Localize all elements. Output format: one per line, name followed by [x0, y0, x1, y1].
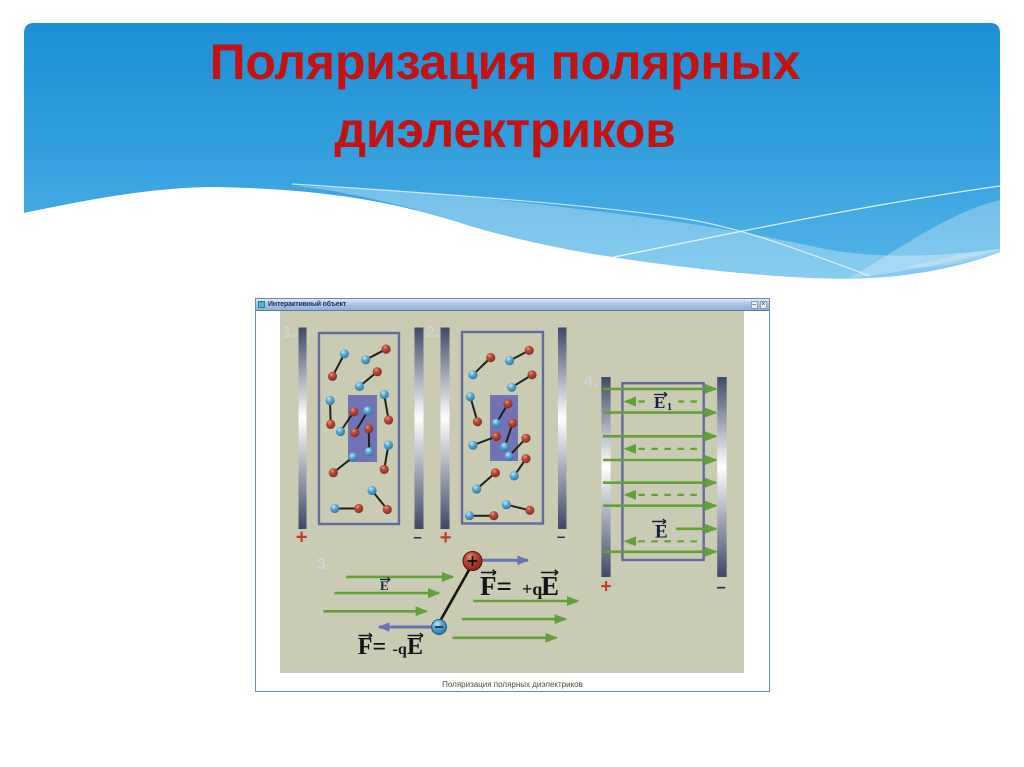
- svg-text:F=: F=: [358, 634, 386, 660]
- svg-text:E: E: [380, 578, 389, 593]
- svg-text:2.: 2.: [426, 324, 439, 341]
- svg-text:+: +: [440, 527, 452, 549]
- svg-text:F=: F=: [480, 571, 512, 601]
- svg-text:E: E: [655, 522, 668, 543]
- svg-text:1.: 1.: [283, 324, 296, 341]
- svg-text:-q: -q: [393, 641, 407, 658]
- svg-text:E: E: [541, 571, 559, 601]
- svg-text:4.: 4.: [584, 373, 597, 390]
- svg-text:–: –: [414, 529, 422, 546]
- svg-text:+: +: [296, 526, 308, 548]
- svg-text:1: 1: [667, 402, 672, 413]
- svg-text:E: E: [654, 393, 665, 412]
- svg-text:–: –: [557, 529, 565, 546]
- svg-text:3.: 3.: [317, 556, 330, 573]
- svg-text:–: –: [717, 577, 726, 596]
- svg-text:+q: +q: [522, 579, 542, 599]
- svg-text:+: +: [601, 577, 612, 598]
